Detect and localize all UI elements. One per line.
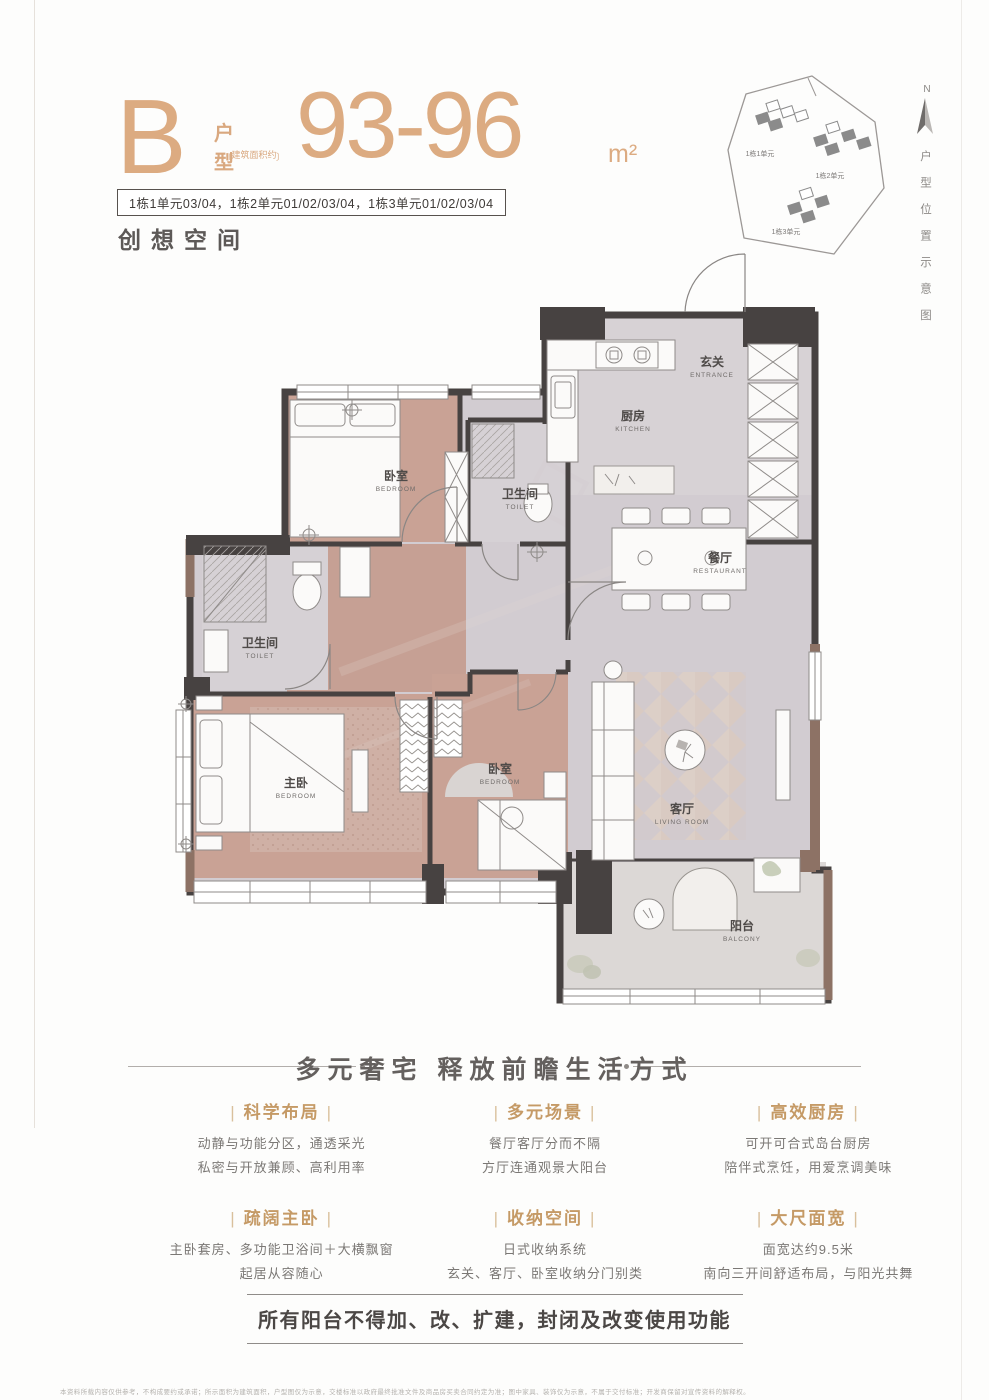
feature-line: 陪伴式烹饪，用爱烹调美味 — [677, 1156, 940, 1180]
cluster-label-1: 1栋1单元 — [746, 149, 775, 158]
feature-storage: 收纳空间 日式收纳系统 玄关、客厅、卧室收纳分门别类 — [413, 1204, 676, 1286]
label-toilet2-zh: 卫生间 — [502, 486, 538, 501]
unit-type-label: 户型 — [213, 120, 235, 178]
disclaimer-text: 本资料所载内容仅供参考，不构成要约或承诺；所示面积为建筑面积，户型图仅为示意，交… — [60, 1386, 940, 1396]
north-arrow-icon — [913, 96, 937, 138]
page-left-edge-line — [34, 0, 35, 1128]
feature-line: 餐厅客厅分而不隔 — [413, 1132, 676, 1156]
label-bedroom1-en: BEDROOM — [376, 486, 417, 493]
area-unit: m² — [608, 140, 637, 169]
label-master-zh: 主卧 — [284, 775, 308, 790]
feature-scenes: 多元场景 餐厅客厅分而不隔 方厅连通观景大阳台 — [413, 1098, 676, 1180]
feature-title: 收纳空间 — [413, 1204, 676, 1229]
label-bedroom2-zh: 卧室 — [488, 761, 512, 776]
building-cluster-2 — [811, 114, 872, 163]
balcony-notice: 所有阳台不得加、改、扩建，封闭及改变使用功能 — [247, 1294, 743, 1344]
feature-kitchen: 高效厨房 可开可合式岛台厨房 陪伴式烹饪，用爱烹调美味 — [677, 1098, 940, 1180]
label-master-en: BEDROOM — [276, 793, 317, 800]
feature-line: 南向三开间舒适布局，与阳光共舞 — [677, 1262, 940, 1286]
feature-layout: 科学布局 动静与功能分区，通透采光 私密与开放兼顾、高利用率 — [150, 1098, 413, 1180]
master-bed — [196, 696, 368, 850]
label-kitchen-en: KITCHEN — [615, 426, 651, 433]
label-balcony-zh: 阳台 — [730, 918, 754, 933]
label-entrance-en: ENTRANCE — [690, 372, 734, 379]
label-toilet1-en: TOILET — [246, 653, 275, 660]
cluster-label-2: 1栋2单元 — [816, 171, 845, 180]
label-toilet2-en: TOILET — [506, 504, 535, 511]
label-balcony-en: BALCONY — [723, 936, 761, 943]
area-note: 建筑面积约 — [231, 150, 277, 162]
units-badge: 1栋1单元03/04，1栋2单元01/02/03/04，1栋3单元01/02/0… — [117, 189, 506, 216]
feature-line: 可开可合式岛台厨房 — [677, 1132, 940, 1156]
section-heading: 多元奢宅 释放前瞻生活方式 — [0, 1050, 989, 1086]
label-living-en: LIVING ROOM — [655, 819, 709, 826]
feature-title: 大尺面宽 — [677, 1204, 940, 1229]
feature-line: 动静与功能分区，通透采光 — [150, 1132, 413, 1156]
label-toilet1-zh: 卫生间 — [242, 635, 278, 650]
label-bedroom1-zh: 卧室 — [384, 468, 408, 483]
feature-line: 面宽达约9.5米 — [677, 1238, 940, 1262]
site-map-caption: 户型位置示意图 — [917, 150, 933, 450]
label-bedroom2-en: BEDROOM — [480, 779, 521, 786]
label-dining-en: RESTAURANT — [693, 568, 747, 575]
floor-plan: 玄关 ENTRANCE 厨房 KITCHEN 卫生间 TOILET 餐厅 RES… — [100, 252, 890, 1022]
feature-master: 疏阔主卧 主卧套房、多功能卫浴间＋大横飘窗 起居从容随心 — [150, 1204, 413, 1286]
feature-title: 疏阔主卧 — [150, 1204, 413, 1229]
label-entrance-zh: 玄关 — [700, 354, 724, 369]
feature-line: 日式收纳系统 — [413, 1238, 676, 1262]
feature-title: 科学布局 — [150, 1098, 413, 1123]
unit-type-letter: B — [116, 84, 187, 190]
feature-line: 方厅连通观景大阳台 — [413, 1156, 676, 1180]
building-cluster-3 — [784, 183, 833, 226]
label-kitchen-zh: 厨房 — [621, 408, 645, 423]
feature-line: 起居从容随心 — [150, 1262, 413, 1286]
entry-closet — [748, 344, 798, 538]
feature-line: 主卧套房、多功能卫浴间＋大横飘窗 — [150, 1238, 413, 1262]
feature-title: 多元场景 — [413, 1098, 676, 1123]
label-dining-zh: 餐厅 — [708, 550, 732, 565]
north-label: N — [916, 84, 938, 95]
site-location-map: 1栋1单元 1栋2单元 1栋3单元 — [712, 66, 896, 276]
feature-line: 私密与开放兼顾、高利用率 — [150, 1156, 413, 1180]
label-living-zh: 客厅 — [669, 801, 694, 816]
building-cluster-1 — [753, 92, 809, 134]
site-boundary — [728, 76, 884, 254]
feature-title: 高效厨房 — [677, 1098, 940, 1123]
cluster-label-3: 1栋3单元 — [772, 227, 801, 236]
feature-line: 玄关、客厅、卧室收纳分门别类 — [413, 1262, 676, 1286]
brochure-page: B 户型 建筑面积约 93-96 m² 1栋1单元03/04，1栋2单元01/0… — [0, 0, 989, 1400]
tagline: 创想空间 — [118, 221, 250, 255]
feature-width: 大尺面宽 面宽达约9.5米 南向三开间舒适布局，与阳光共舞 — [677, 1204, 940, 1286]
feature-grid: 科学布局 动静与功能分区，通透采光 私密与开放兼顾、高利用率 多元场景 餐厅客厅… — [150, 1098, 940, 1286]
area-value: 93-96 — [296, 78, 521, 172]
page-right-edge-line — [961, 0, 962, 1400]
